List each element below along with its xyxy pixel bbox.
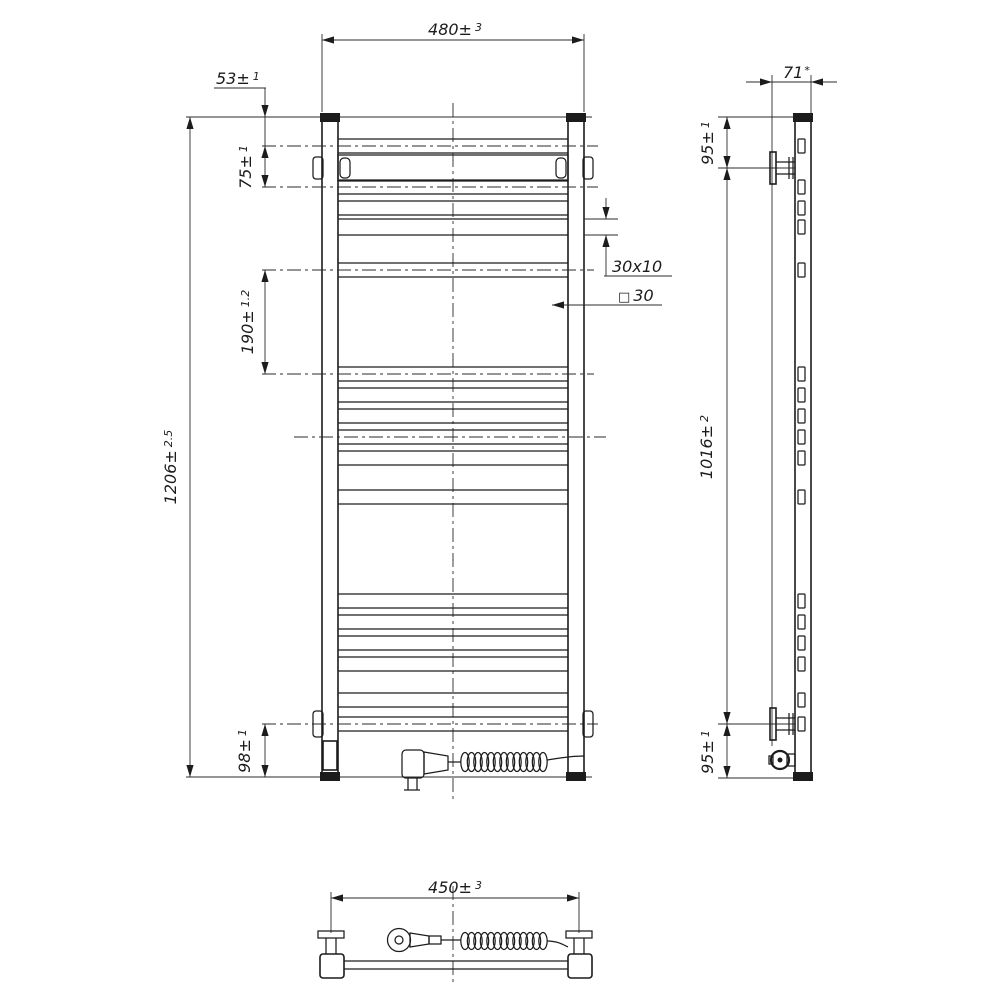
dim-bottom-rung-offset-label: 98±1	[235, 729, 254, 773]
dim-top-offset-label: 53±1	[216, 69, 260, 88]
callout-rung-profile-label: 30x10	[612, 257, 662, 276]
towel-bar-right-cap	[556, 158, 566, 178]
side-power-element	[769, 751, 795, 769]
bottom-left-post-section	[320, 954, 344, 978]
dim-overall-depth-label: 71*	[783, 63, 810, 82]
side-post-bottom-cap	[793, 772, 813, 781]
dim-top-bracket-offset-label: 95±1	[698, 121, 717, 165]
heating-element-box	[323, 741, 337, 770]
side-post-top-cap	[793, 113, 813, 122]
dim-front-width-label: 480±3	[428, 20, 482, 39]
dim-overall-height-label: 1206±2.5	[161, 430, 180, 505]
bottom-bracket-right	[566, 931, 592, 954]
front-view: 480±3 53±1 75±1 190±1.2 1206±2.5 98±1	[161, 20, 672, 800]
plug-body-bottom	[410, 933, 429, 947]
dim-front-width: 480±3	[322, 20, 584, 112]
dim-top-bracket-offset: 95±1	[698, 117, 796, 168]
side-view: 71* 95±1 1016±2 95±1	[697, 63, 837, 781]
power-cord-front	[402, 750, 584, 790]
plug-body	[424, 752, 448, 774]
towel-rail-drawing: 480±3 53±1 75±1 190±1.2 1206±2.5 98±1	[0, 0, 1000, 1000]
callout-rung-profile: 30x10	[584, 198, 672, 276]
dim-top-offset: 53±1 75±1	[214, 69, 266, 189]
coiled-cable	[461, 753, 547, 772]
dim-bracket-spacing-width-label: 450±3	[428, 878, 482, 897]
front-left-post	[322, 117, 338, 777]
bottom-rung-edge	[344, 961, 568, 969]
dim-overall-depth: 71*	[746, 63, 837, 116]
plug-prongs	[404, 778, 420, 790]
technical-drawing-page: 480±3 53±1 75±1 190±1.2 1206±2.5 98±1	[0, 0, 1000, 1000]
side-post	[795, 117, 811, 777]
callout-post-profile-label: □30	[618, 286, 654, 305]
dim-bracket-spacing-width: 450±3	[331, 878, 579, 933]
plug-head	[402, 750, 424, 778]
side-rung-sections	[798, 139, 805, 731]
dim-rung-group-spacing: 190±1.2	[238, 270, 265, 374]
towel-bar-left-cap	[340, 158, 350, 178]
dim-bracket-span: 1016±2	[697, 168, 727, 724]
dim-bottom-bracket-offset-label: 95±1	[698, 730, 717, 774]
cable-tail-bottom	[547, 941, 568, 947]
power-cord-bottom	[388, 929, 569, 952]
plug-head-bottom	[388, 929, 411, 952]
bottom-right-post-section	[568, 954, 592, 978]
cable-tail	[547, 756, 584, 760]
dim-overall-height: 1206±2.5	[161, 117, 190, 777]
front-right-post	[568, 117, 584, 777]
dim-bottom-rung-offset: 98±1	[235, 724, 265, 777]
bottom-bracket-left	[318, 931, 344, 954]
reference-lines	[186, 117, 592, 777]
bottom-view: 450±3	[318, 878, 592, 986]
dim-first-rung-spacing-label: 75±1	[236, 145, 255, 189]
rung-center-lines	[262, 146, 606, 724]
dim-bracket-span-label: 1016±2	[697, 415, 716, 479]
dim-rung-group-spacing-label: 190±1.2	[238, 290, 257, 354]
coiled-cable-bottom	[461, 933, 547, 950]
